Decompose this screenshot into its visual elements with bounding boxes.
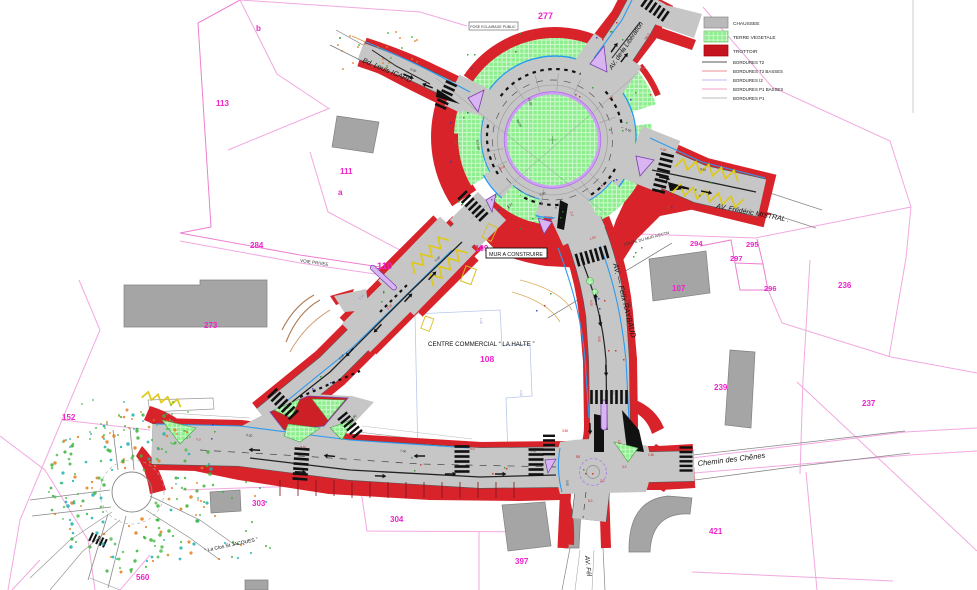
svg-text:304: 304 [390,515,404,524]
svg-text:12.00: 12.00 [627,300,632,309]
svg-text:BORDURES P1: BORDURES P1 [733,96,765,101]
svg-text:294: 294 [690,239,703,248]
svg-text:CENTRE COMMERCIAL “ LA HALTE ”: CENTRE COMMERCIAL “ LA HALTE ” [428,341,535,348]
svg-text:113: 113 [216,99,229,108]
svg-text:237: 237 [862,399,876,408]
svg-text:BORDURES P1 BASSES: BORDURES P1 BASSES [733,87,783,92]
svg-text:MUR A CONSTRUIRE: MUR A CONSTRUIRE [489,252,543,258]
svg-text:239: 239 [714,383,728,392]
svg-text:3.0: 3.0 [470,447,475,451]
svg-text:560: 560 [136,573,150,582]
svg-text:110: 110 [377,261,392,272]
svg-text:BORDURES I2: BORDURES I2 [733,78,763,83]
svg-text:3.50: 3.50 [530,449,537,453]
svg-text:2.00: 2.00 [519,390,523,397]
svg-text:303: 303 [252,499,266,508]
svg-text:397: 397 [515,557,529,566]
svg-text:273: 273 [204,321,218,330]
svg-text:3.50: 3.50 [565,480,570,487]
svg-text:111: 111 [340,167,353,176]
svg-text:2.0: 2.0 [600,479,605,483]
svg-text:1.00: 1.00 [479,318,483,325]
svg-text:BORDURES T2: BORDURES T2 [733,60,765,65]
svg-text:284: 284 [250,241,264,250]
svg-text:5.0: 5.0 [588,499,593,503]
svg-text:236: 236 [838,281,852,290]
svg-text:107: 107 [672,284,686,293]
svg-text:295: 295 [746,240,759,249]
svg-text:421: 421 [709,527,723,536]
svg-text:CHAUSSEE: CHAUSSEE [733,21,759,27]
svg-text:TERRE VEGETALE: TERRE VEGETALE [733,35,776,41]
svg-text:TROTTOIR: TROTTOIR [733,49,758,55]
svg-text:3.50: 3.50 [300,445,307,450]
svg-text:152: 152 [62,413,76,422]
svg-text:277: 277 [538,11,553,21]
svg-text:b: b [256,24,261,33]
svg-text:BORDURES T2 BASSES: BORDURES T2 BASSES [733,69,783,74]
svg-text:R8: R8 [576,455,580,459]
svg-text:3.3: 3.3 [622,465,627,469]
svg-text:6.00: 6.00 [589,300,594,307]
svg-text:108: 108 [480,354,494,364]
svg-text:3.50: 3.50 [597,336,601,343]
svg-text:a: a [338,188,343,197]
svg-text:297: 297 [730,254,743,263]
svg-text:296: 296 [764,284,777,293]
svg-text:3.50: 3.50 [562,429,568,433]
svg-text:1.50: 1.50 [648,453,654,457]
svg-text:POSE ECLAIRAGE PUBLIC: POSE ECLAIRAGE PUBLIC [470,25,516,29]
svg-text:3.0: 3.0 [611,390,615,395]
svg-text:7.00: 7.00 [400,449,407,453]
